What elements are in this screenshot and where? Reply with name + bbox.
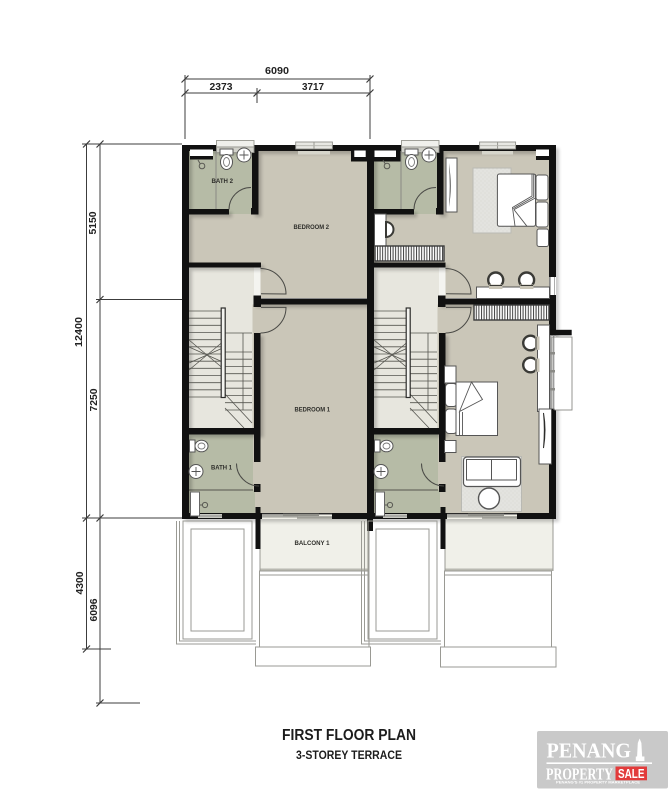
svg-text:6090: 6090 bbox=[265, 66, 289, 77]
svg-text:SALE: SALE bbox=[618, 767, 645, 781]
svg-text:BEDROOM 2: BEDROOM 2 bbox=[294, 224, 330, 231]
svg-text:PENANG'S #1 PROPERTY MARKETPLA: PENANG'S #1 PROPERTY MARKETPLACE bbox=[556, 781, 641, 785]
svg-text:FIRST FLOOR PLAN: FIRST FLOOR PLAN bbox=[282, 727, 416, 744]
svg-text:2373: 2373 bbox=[210, 82, 233, 93]
svg-text:BEDROOM 1: BEDROOM 1 bbox=[295, 407, 331, 414]
svg-text:BATH 2: BATH 2 bbox=[212, 178, 234, 185]
svg-text:7250: 7250 bbox=[89, 388, 100, 411]
svg-text:5150: 5150 bbox=[88, 211, 99, 234]
svg-text:4300: 4300 bbox=[75, 571, 86, 594]
svg-text:BATH 1: BATH 1 bbox=[211, 465, 232, 472]
svg-text:12400: 12400 bbox=[74, 317, 85, 347]
svg-text:BALCONY 1: BALCONY 1 bbox=[295, 540, 330, 547]
svg-text:3717: 3717 bbox=[302, 82, 324, 93]
svg-text:3-STOREY TERRACE: 3-STOREY TERRACE bbox=[296, 750, 402, 762]
svg-text:PENANG: PENANG bbox=[547, 739, 632, 763]
svg-text:6096: 6096 bbox=[89, 598, 100, 621]
